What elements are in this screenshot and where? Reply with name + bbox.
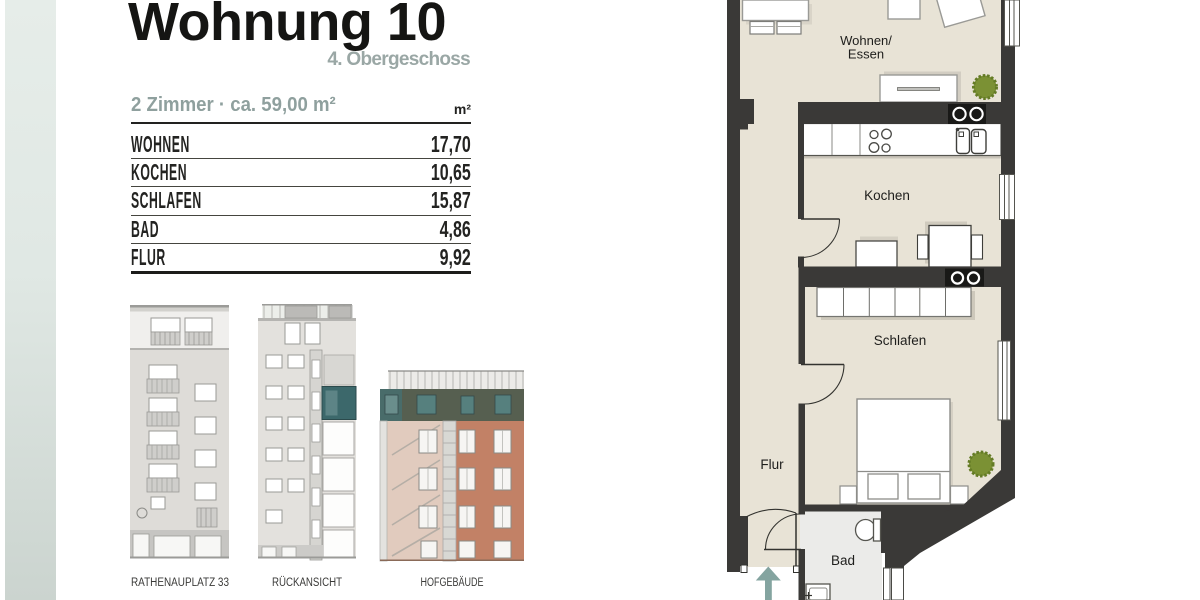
svg-text:Flur: Flur [760,457,784,472]
svg-text:Bad: Bad [831,553,855,568]
svg-text:RATHENAUPLATZ 33: RATHENAUPLATZ 33 [131,577,229,589]
svg-text:RÜCKANSICHT: RÜCKANSICHT [272,577,342,589]
svg-text:Schlafen: Schlafen [874,333,927,348]
svg-text:Essen: Essen [848,47,884,62]
svg-text:Kochen: Kochen [864,188,910,203]
svg-text:HOFGEBÄUDE: HOFGEBÄUDE [421,577,484,589]
